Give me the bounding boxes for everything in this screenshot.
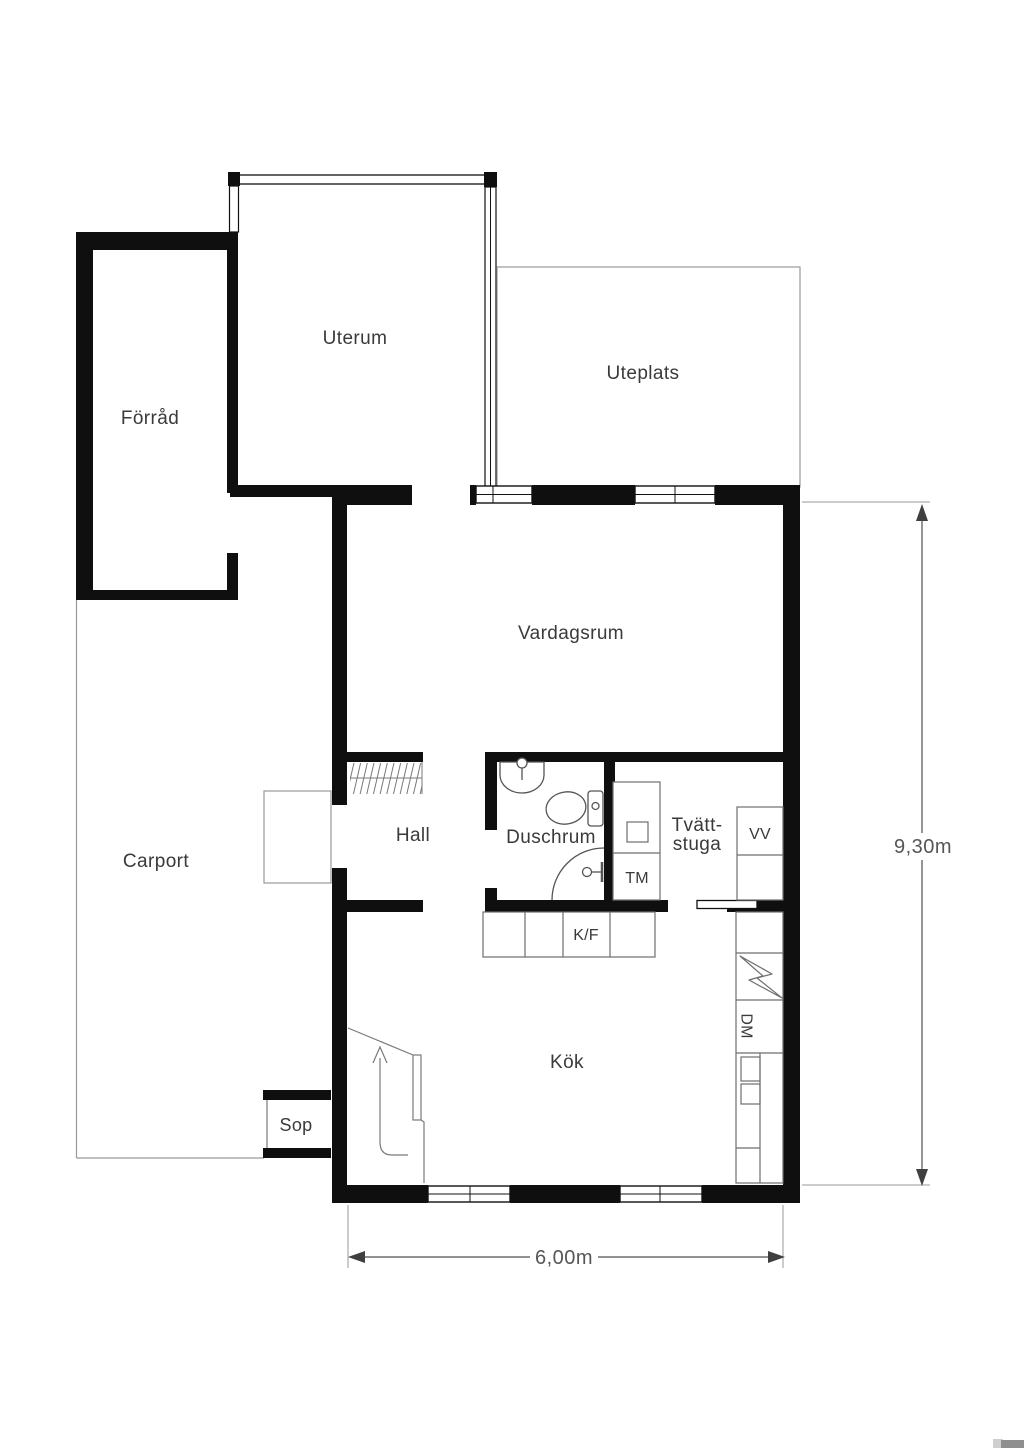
uteplats-label: Uteplats [607, 363, 680, 384]
tvattstuga-sliding-door [697, 901, 757, 909]
wall-south-3 [702, 1185, 800, 1203]
entry-landing [264, 791, 331, 883]
wall-uterum-south [230, 485, 347, 497]
wall-west-lower [332, 868, 347, 1203]
arrow-left-icon [348, 1251, 365, 1263]
forrad-room: Förråd [76, 232, 238, 600]
forrad-label: Förråd [121, 408, 179, 429]
toilet-icon [544, 789, 603, 827]
tvattstuga-label-line1: Tvätt- [672, 815, 723, 836]
duschrum-room: Duschrum [500, 758, 604, 900]
wall-duschrum-west-upper [485, 752, 497, 830]
window-north-2 [635, 486, 715, 503]
water-heater-cabinet [737, 807, 783, 900]
entry-stair [348, 1028, 424, 1183]
wall-hall-north [347, 752, 423, 762]
kok-label: Kök [550, 1052, 584, 1073]
wall-east [783, 485, 800, 1203]
wall-sop-north [263, 1090, 331, 1100]
wall-forrad-south [76, 590, 238, 600]
watermark-fragment [993, 1439, 1024, 1448]
dimension-height: 9,30m [802, 502, 952, 1186]
tm-label: TM [625, 870, 649, 887]
wall-north-3 [715, 485, 783, 505]
arrow-right-icon [768, 1251, 785, 1263]
sop-room: Sop [263, 1090, 331, 1158]
wall-north-2 [532, 485, 635, 505]
uteplats-area: Uteplats [497, 267, 800, 487]
wall-forrad-east-stub [227, 553, 238, 593]
wall-south-2 [510, 1185, 620, 1203]
arrow-down-icon [916, 1169, 928, 1186]
wall-forrad-north [76, 232, 238, 250]
vv-label: VV [749, 826, 771, 843]
uterum-glass-wall-north [239, 175, 485, 184]
floorplan-canvas: Förråd Uterum Uteplats Carport Sop [0, 0, 1024, 1448]
kitchen-counter-east [736, 912, 783, 1183]
wall-west-upper [332, 497, 347, 805]
tvattstuga-label-line2: stuga [673, 834, 722, 855]
hall-room: Hall [350, 762, 430, 846]
wall-north-stub [470, 485, 476, 505]
duschrum-label: Duschrum [506, 827, 596, 848]
uterum-post-ne [484, 172, 497, 187]
vardagsrum-label: Vardagsrum [518, 623, 624, 644]
uterum-room: Uterum [228, 172, 497, 487]
wall-sop-south [263, 1148, 331, 1158]
dimension-width: 6,00m [348, 1205, 785, 1269]
wall-forrad-west [76, 232, 93, 600]
carport-label: Carport [123, 851, 189, 872]
window-south-2 [620, 1186, 702, 1202]
uterum-label: Uterum [323, 328, 388, 349]
wall-duschrum-tvattstuga-north [485, 752, 783, 762]
uterum-glass-wall-west [230, 186, 239, 232]
sop-label: Sop [280, 1115, 313, 1135]
window-north-1 [476, 486, 532, 503]
dm-label: DM [738, 1013, 755, 1038]
width-dimension-label: 6,00m [535, 1247, 593, 1269]
arrow-up-icon [916, 504, 928, 521]
wall-hall-south [347, 900, 423, 912]
shower-icon [552, 848, 604, 900]
floorplan-page: Förråd Uterum Uteplats Carport Sop [0, 0, 1024, 1448]
fridge-freezer-counter [483, 912, 655, 957]
height-dimension-label: 9,30m [894, 836, 952, 858]
tvattstuga-room: TM VV Tvätt- stuga [613, 782, 783, 900]
wall-south-1 [332, 1185, 428, 1203]
wall-forrad-east-upper [227, 232, 238, 493]
hall-label: Hall [396, 825, 430, 846]
sink-icon [500, 758, 544, 793]
wall-duschrum-south [485, 900, 668, 912]
kf-label: K/F [573, 927, 599, 944]
uterum-post-nw [228, 172, 240, 186]
kok-room: K/F DM Kök [348, 912, 783, 1183]
washer-door [627, 822, 648, 842]
window-south-1 [428, 1186, 510, 1202]
entry-arrow-line [380, 1058, 408, 1155]
